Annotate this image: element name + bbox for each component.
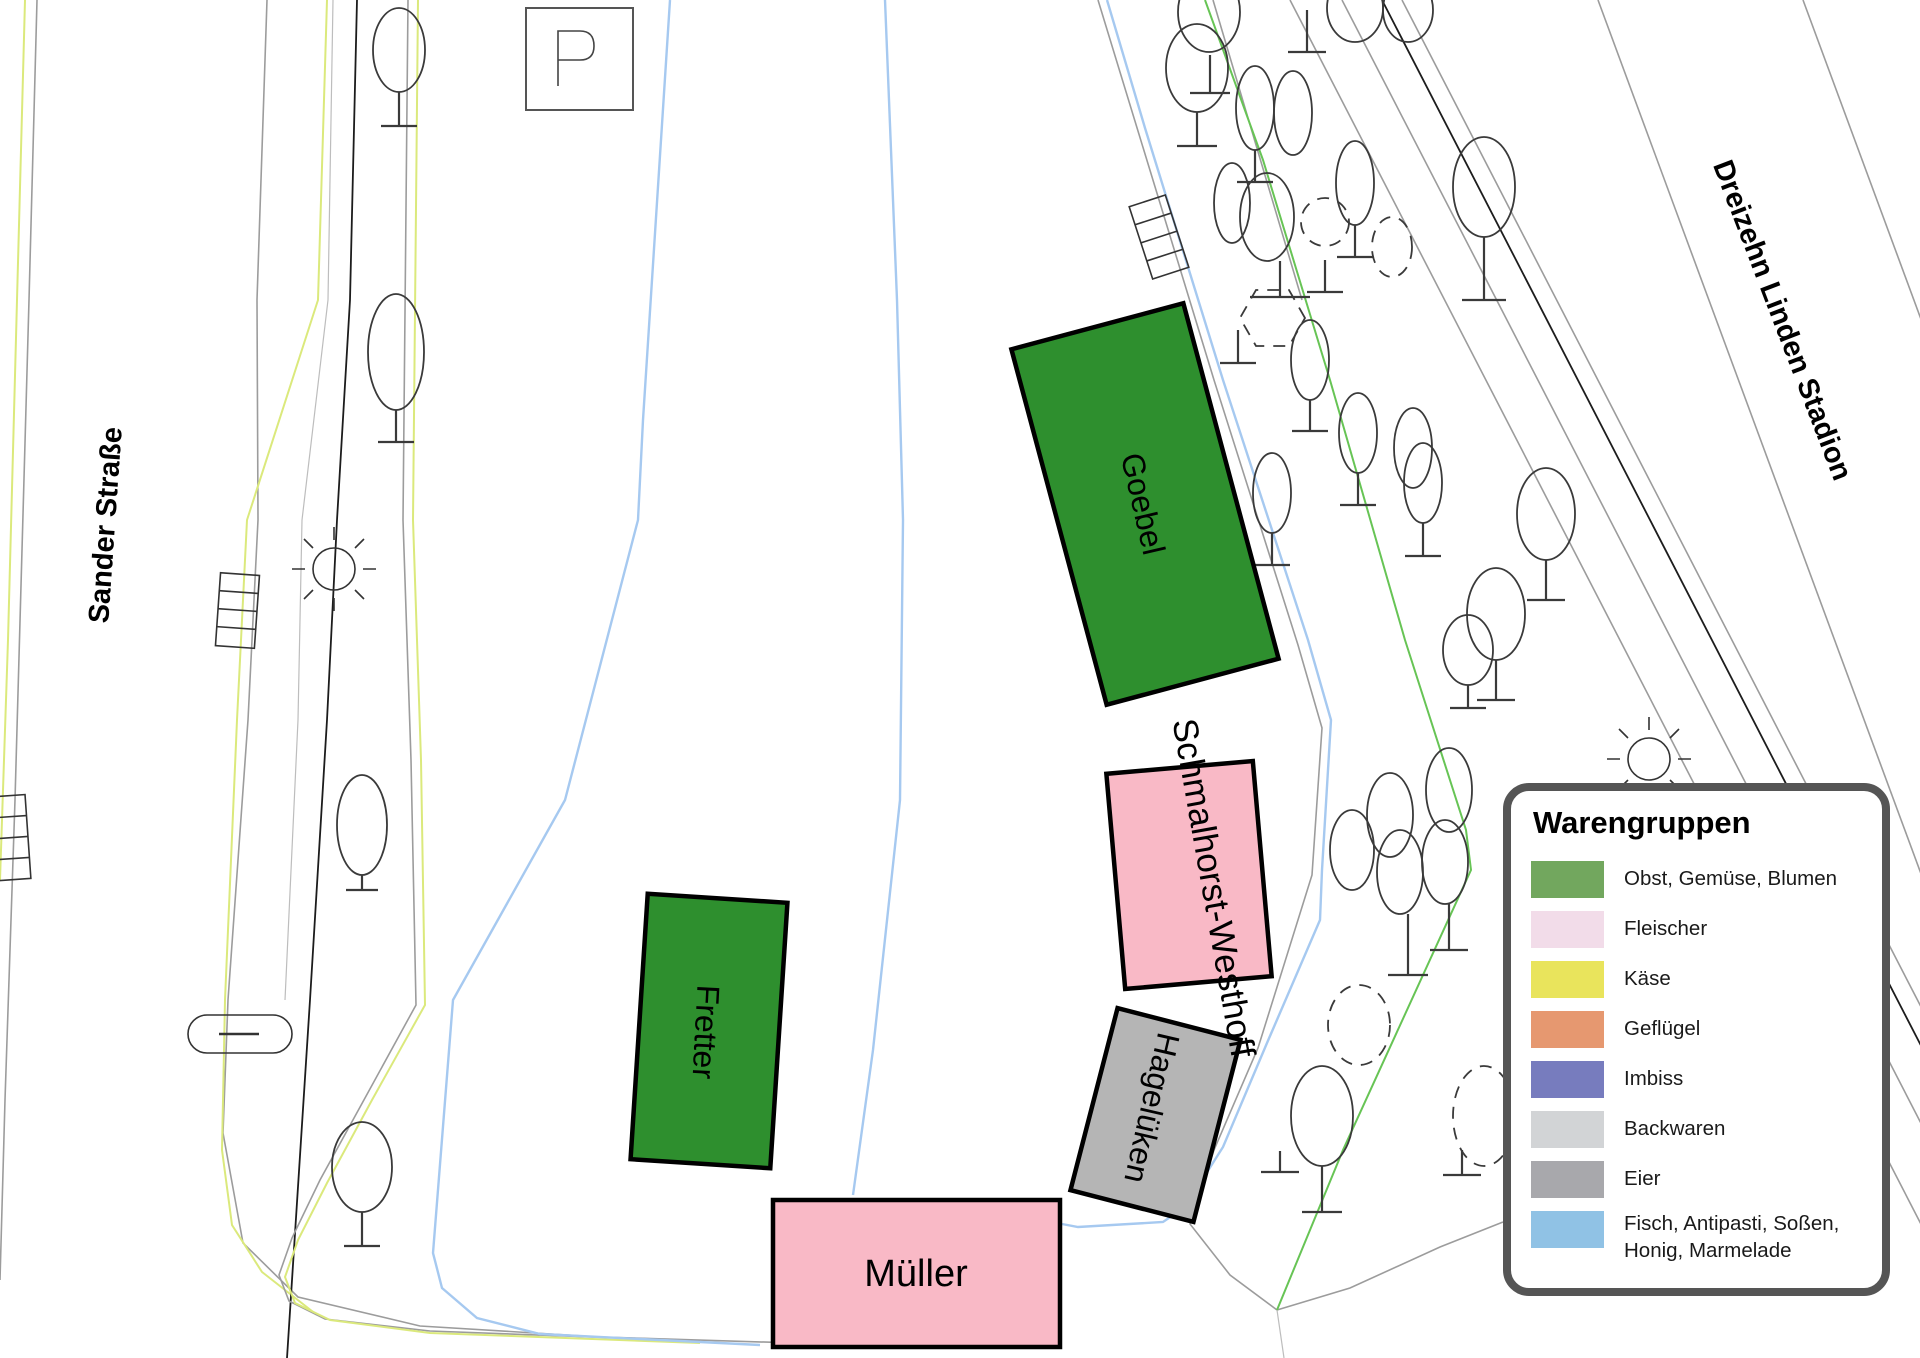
tree-icon bbox=[1291, 1066, 1353, 1212]
tree-trunk-icon bbox=[1388, 914, 1428, 975]
legend-title: Warengruppen bbox=[1533, 805, 1862, 841]
tree-icon bbox=[1166, 24, 1228, 146]
legend-swatch-eier bbox=[1531, 1161, 1604, 1198]
legend-label: Backwaren bbox=[1624, 1116, 1862, 1143]
tree-icon bbox=[1274, 71, 1312, 155]
legend-warengruppen: Warengruppen Obst, Gemüse, Blumen Fleisc… bbox=[1503, 783, 1890, 1296]
legend-label: Käse bbox=[1624, 966, 1862, 993]
stall-label-fretter: Fretter bbox=[686, 984, 727, 1080]
tree-icon bbox=[1291, 320, 1329, 431]
legend-label: Fisch, Antipasti, Soßen, Honig, Marmelad… bbox=[1624, 1211, 1862, 1264]
legend-swatch-imbiss bbox=[1531, 1061, 1604, 1098]
tree-icon bbox=[1453, 137, 1515, 300]
legend-item: Imbiss bbox=[1531, 1061, 1862, 1098]
tree-icon bbox=[1253, 453, 1291, 565]
legend-item: Eier bbox=[1531, 1161, 1862, 1198]
stall-label-mueller: Müller bbox=[864, 1253, 968, 1295]
tree-icon bbox=[1339, 393, 1377, 505]
legend-item: Obst, Gemüse, Blumen bbox=[1531, 861, 1862, 898]
legend-swatch-kaese bbox=[1531, 961, 1604, 998]
tree-icon bbox=[1383, 0, 1433, 42]
street-label-dreizehn-linden-stadion: Dreizehn Linden Stadion bbox=[1706, 156, 1858, 485]
tree-trunk-icon bbox=[1261, 1151, 1299, 1172]
tree-icon bbox=[1377, 830, 1423, 914]
parking-sign bbox=[526, 8, 633, 110]
tree-icon bbox=[1336, 141, 1374, 257]
tree-trunk-icon bbox=[1430, 904, 1468, 950]
market-site-plan: { "map": { "streets": { "sander": "Sande… bbox=[0, 0, 1920, 1358]
legend-label: Eier bbox=[1624, 1166, 1862, 1193]
legend-label: Fleischer bbox=[1624, 916, 1862, 943]
tree-trunk-icon bbox=[1220, 330, 1256, 363]
tree-icon bbox=[1372, 217, 1412, 277]
tree-icon bbox=[1330, 810, 1374, 890]
legend-item: Backwaren bbox=[1531, 1111, 1862, 1148]
legend-rows: Obst, Gemüse, Blumen Fleischer Käse Gefl… bbox=[1531, 861, 1862, 1264]
legend-item: Geflügel bbox=[1531, 1011, 1862, 1048]
tree-trunk-icon bbox=[1307, 260, 1343, 292]
legend-swatch-fleischer bbox=[1531, 911, 1604, 948]
tree-icon bbox=[1240, 290, 1305, 346]
street-label-sander-strasse: Sander Straße bbox=[83, 426, 129, 624]
bus-bay-icon bbox=[188, 1015, 292, 1053]
trees bbox=[332, 0, 1575, 1246]
tree-icon bbox=[1404, 443, 1442, 556]
legend-swatch-gefluegel bbox=[1531, 1011, 1604, 1048]
legend-item: Fleischer bbox=[1531, 911, 1862, 948]
tree-icon bbox=[1328, 985, 1390, 1065]
legend-swatch-obst bbox=[1531, 861, 1604, 898]
tree-trunk-icon bbox=[1288, 10, 1326, 52]
tree-trunk-icon bbox=[1443, 1150, 1481, 1175]
tree-icon bbox=[1467, 568, 1525, 700]
legend-label: Imbiss bbox=[1624, 1066, 1862, 1093]
legend-label: Geflügel bbox=[1624, 1016, 1862, 1043]
tree-icon bbox=[1327, 0, 1383, 42]
tree-icon bbox=[337, 775, 387, 890]
legend-swatch-fisch bbox=[1531, 1211, 1604, 1248]
legend-item: Fisch, Antipasti, Soßen, Honig, Marmelad… bbox=[1531, 1211, 1862, 1264]
tree-icon bbox=[1422, 820, 1468, 904]
tree-icon bbox=[1214, 163, 1250, 243]
legend-swatch-backwaren bbox=[1531, 1111, 1604, 1148]
tree-icon bbox=[1426, 748, 1472, 832]
tree-icon bbox=[1517, 468, 1575, 600]
tree-icon bbox=[1301, 198, 1349, 246]
legend-item: Käse bbox=[1531, 961, 1862, 998]
legend-label: Obst, Gemüse, Blumen bbox=[1624, 866, 1862, 893]
tree-icon bbox=[1236, 66, 1274, 182]
